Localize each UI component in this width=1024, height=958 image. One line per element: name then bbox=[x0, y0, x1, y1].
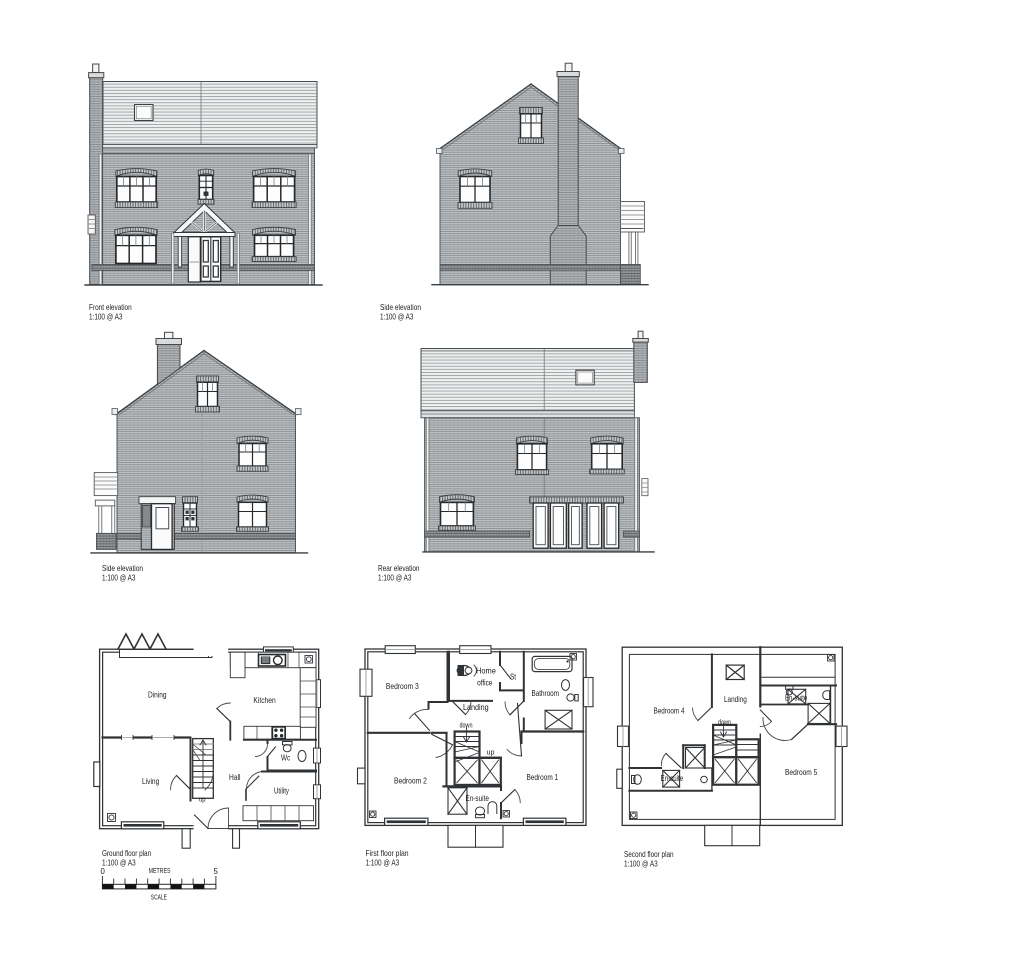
svg-text:En-suite: En-suite bbox=[466, 793, 490, 803]
svg-text:METRES: METRES bbox=[149, 866, 171, 875]
svg-text:En-suite: En-suite bbox=[661, 773, 684, 783]
svg-text:Side elevation: Side elevation bbox=[102, 563, 143, 573]
svg-text:Utility: Utility bbox=[274, 786, 289, 796]
svg-text:1:100 @ A3: 1:100 @ A3 bbox=[89, 312, 123, 322]
svg-text:Landing: Landing bbox=[463, 702, 489, 712]
svg-text:First floor plan: First floor plan bbox=[366, 848, 409, 858]
svg-text:En-suite: En-suite bbox=[785, 693, 807, 703]
svg-text:Kitchen: Kitchen bbox=[253, 695, 275, 705]
svg-text:Rear elevation: Rear elevation bbox=[378, 563, 420, 573]
svg-text:1:100 @ A3: 1:100 @ A3 bbox=[624, 859, 658, 869]
svg-text:office: office bbox=[477, 678, 492, 688]
svg-text:down: down bbox=[718, 718, 731, 727]
svg-text:1:100 @ A3: 1:100 @ A3 bbox=[380, 312, 414, 322]
svg-text:Bedroom 4: Bedroom 4 bbox=[654, 706, 685, 716]
svg-text:0: 0 bbox=[101, 867, 106, 876]
svg-text:1:100 @ A3: 1:100 @ A3 bbox=[366, 858, 400, 868]
svg-text:Ground floor plan: Ground floor plan bbox=[102, 848, 151, 858]
svg-text:Bedroom 3: Bedroom 3 bbox=[386, 681, 419, 691]
svg-text:Dining: Dining bbox=[148, 690, 167, 700]
svg-text:down: down bbox=[460, 721, 473, 730]
svg-text:Bedroom 2: Bedroom 2 bbox=[394, 776, 427, 786]
svg-text:Bedroom 1: Bedroom 1 bbox=[527, 772, 559, 782]
svg-text:Hall: Hall bbox=[229, 772, 241, 782]
svg-text:up: up bbox=[199, 797, 206, 804]
svg-text:1:100 @ A3: 1:100 @ A3 bbox=[378, 573, 412, 583]
svg-text:Front elevation: Front elevation bbox=[89, 302, 132, 312]
svg-text:SCALE: SCALE bbox=[151, 893, 167, 902]
svg-text:1:100 @ A3: 1:100 @ A3 bbox=[102, 858, 136, 868]
svg-text:Side elevation: Side elevation bbox=[380, 302, 421, 312]
svg-text:Landing: Landing bbox=[724, 694, 747, 704]
svg-text:Living: Living bbox=[142, 776, 159, 786]
svg-text:St: St bbox=[510, 672, 516, 682]
svg-text:up: up bbox=[487, 748, 495, 757]
svg-text:5: 5 bbox=[214, 867, 219, 876]
svg-text:1:100 @ A3: 1:100 @ A3 bbox=[102, 573, 136, 583]
svg-text:Bathroom: Bathroom bbox=[532, 688, 560, 698]
svg-text:Wc: Wc bbox=[281, 753, 291, 763]
svg-text:Second floor plan: Second floor plan bbox=[624, 849, 674, 859]
svg-text:Home: Home bbox=[476, 666, 496, 676]
svg-text:Bedroom 5: Bedroom 5 bbox=[785, 767, 817, 777]
